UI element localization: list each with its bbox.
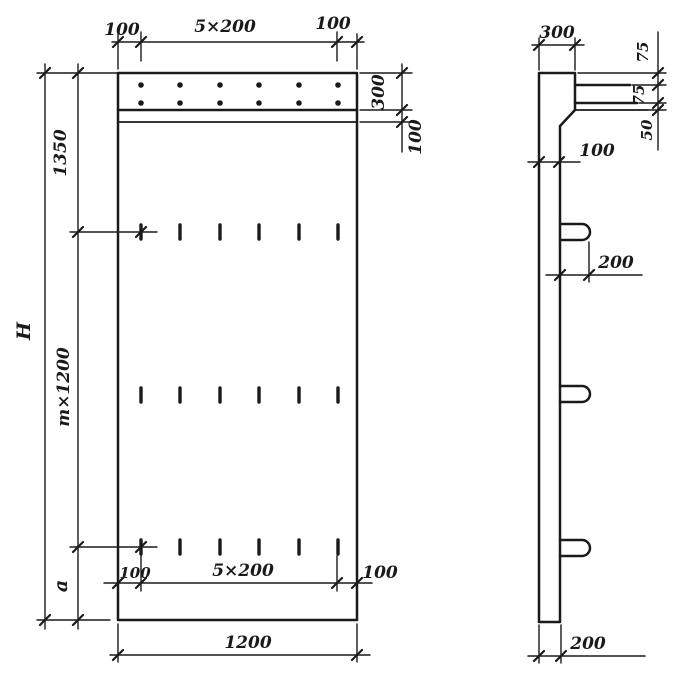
dim-left-upper: 1350 [51, 129, 71, 176]
dim-bottom-right: 100 [362, 563, 398, 583]
dim-side-bottom-thickness: 200 [569, 634, 606, 654]
front-dash-row-2 [141, 388, 338, 402]
dim-top-span: 5×200 [194, 17, 256, 37]
front-view [118, 73, 357, 620]
side-lifting-loop-3 [560, 540, 590, 556]
dim-top-left: 100 [104, 20, 140, 40]
dim-bottom-span: 5×200 [212, 561, 274, 581]
dim-top-right: 100 [315, 14, 351, 34]
dim-side-loop-projection: 200 [597, 253, 634, 273]
dim-left-middle: m×1200 [54, 347, 74, 427]
side-lifting-loop-2 [560, 386, 590, 402]
front-panel-outline [118, 73, 357, 620]
dim-band-height: 300 [369, 74, 389, 110]
dim-side-bar-offset-top: 75 [634, 42, 652, 63]
side-view-dimensions: 300 75 75 50 100 200 200 [528, 23, 666, 663]
dim-left-total-height: H [13, 321, 35, 341]
dim-side-bar-spacing: 75 [630, 85, 648, 106]
dim-bottom-left: 100 [119, 564, 151, 582]
dim-left-lower: a [50, 580, 72, 592]
dim-band-offset: 100 [406, 119, 426, 155]
side-dimension-lines [528, 45, 645, 656]
front-dash-row-1 [141, 225, 338, 239]
dim-overall-width: 1200 [224, 633, 271, 653]
dim-side-bar-offset-bottom: 50 [638, 119, 656, 140]
front-bar-dots [138, 82, 341, 106]
dim-side-rib-thickness: 100 [579, 141, 615, 161]
dim-side-top-thickness: 300 [539, 23, 575, 43]
side-lifting-loop-1 [560, 224, 590, 240]
panel-engineering-drawing: 100 5×200 100 300 100 1350 m×1200 H a 10… [0, 0, 700, 700]
front-dash-row-3 [141, 540, 338, 554]
